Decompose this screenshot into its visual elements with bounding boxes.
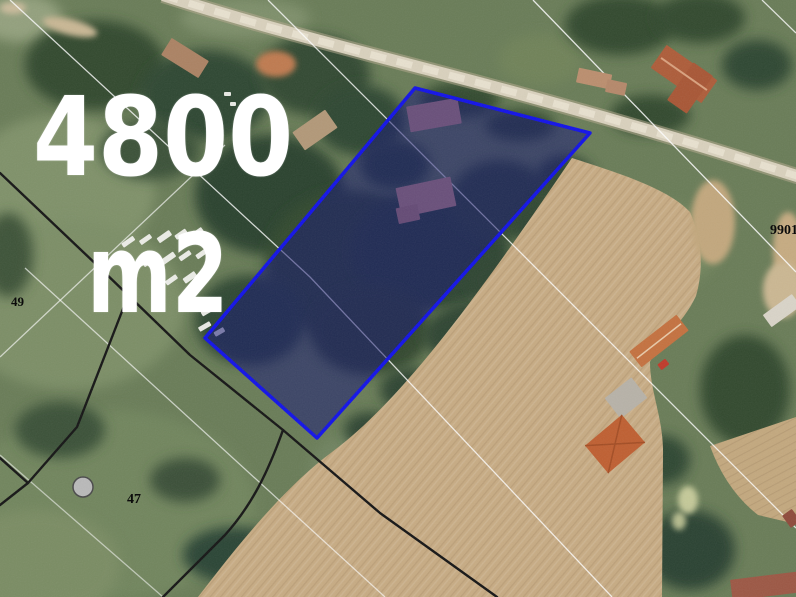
parcel-number-47: 47 [127,493,141,507]
area-value-label: 4800 [33,85,293,190]
parcel-number-9901: 9901 [770,224,796,238]
area-unit-label: m2 [87,222,228,327]
aerial-map: 4800 m2 49 47 9901 [0,0,796,597]
parcel-number-49: 49 [11,295,24,308]
